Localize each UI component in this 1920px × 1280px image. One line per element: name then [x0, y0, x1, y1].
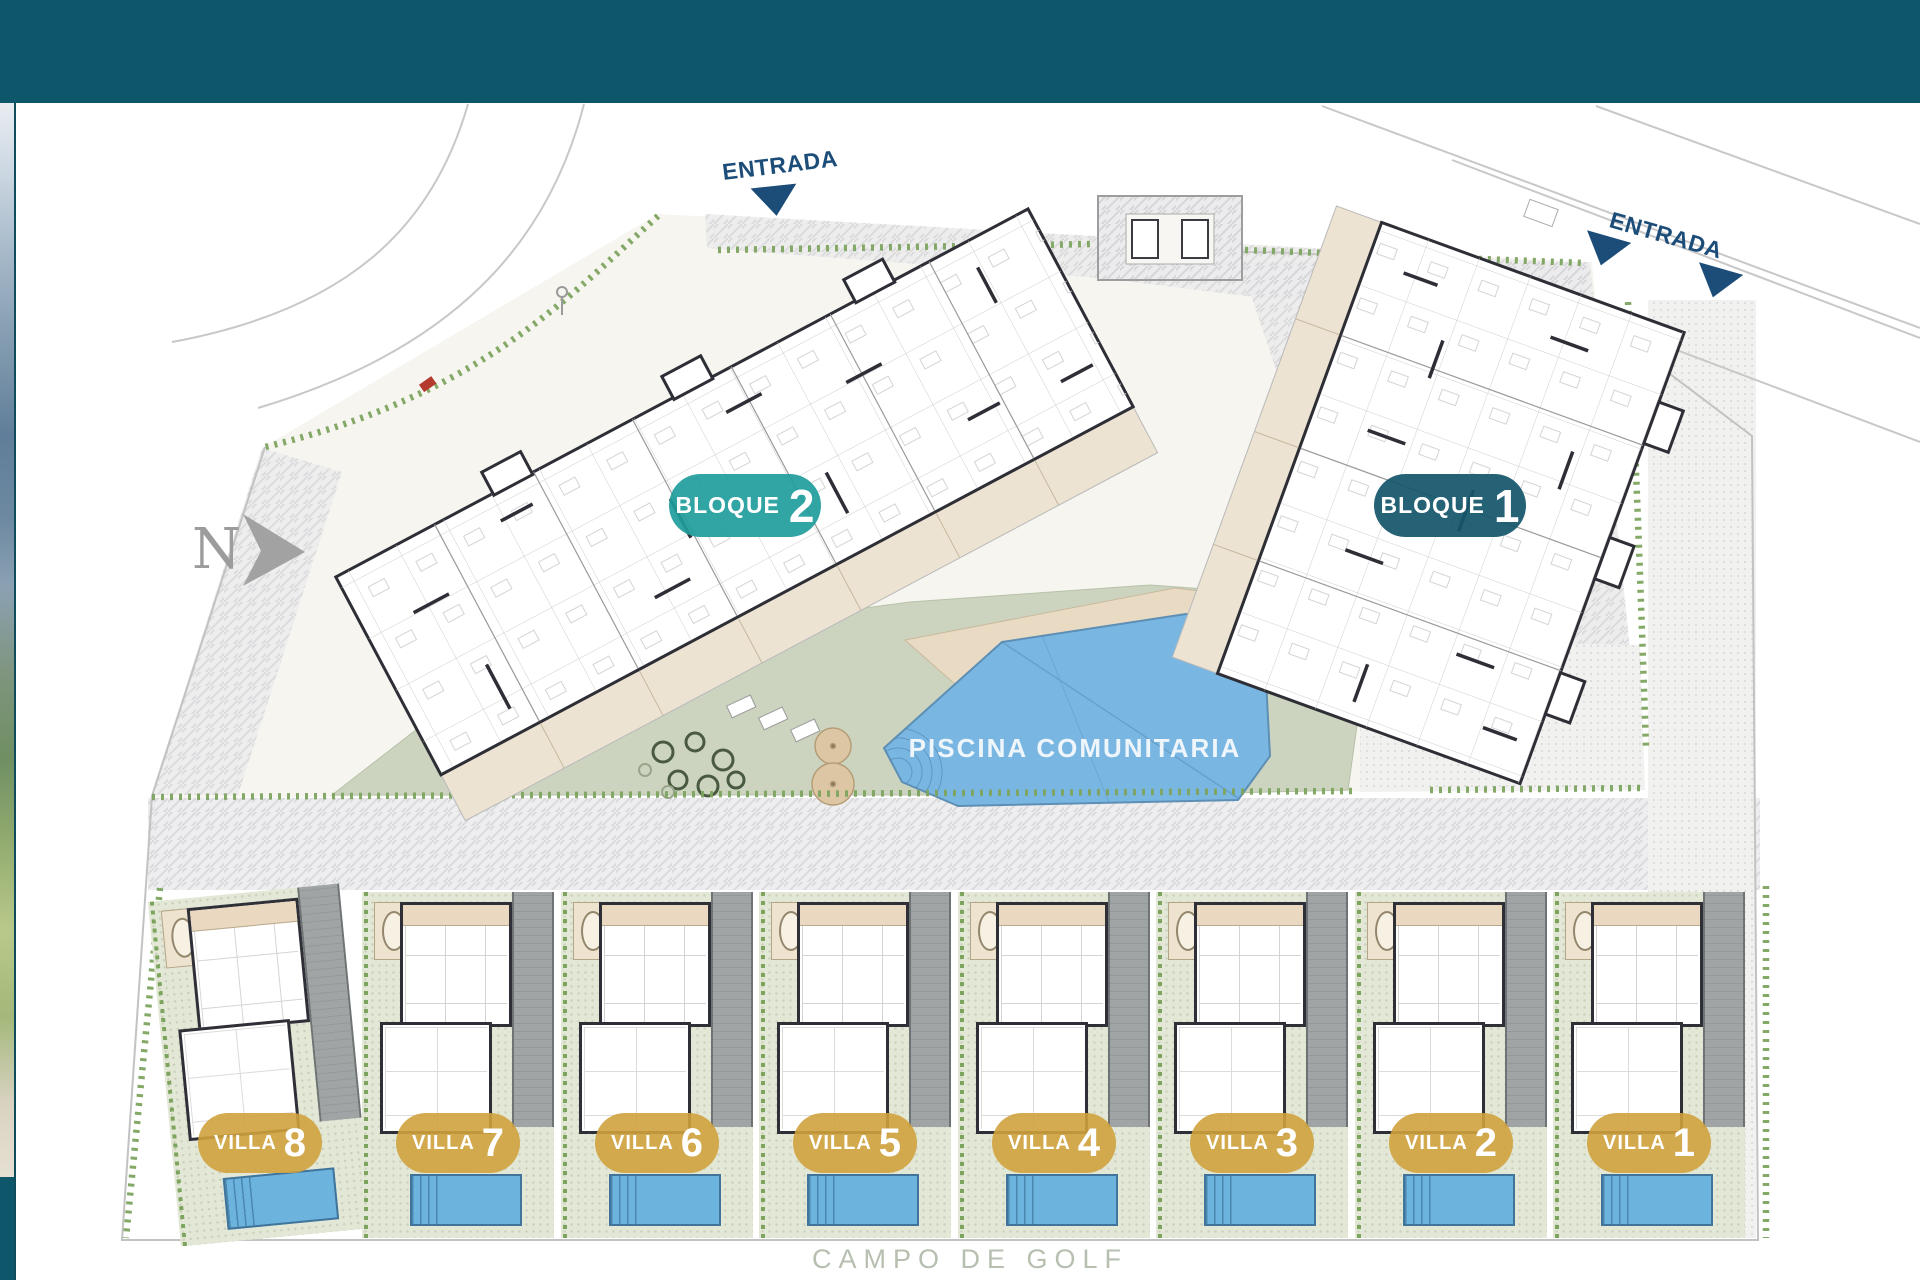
villa-7-plot: VILLA 7 — [362, 892, 554, 1238]
bloque-2-label: BLOQUE — [676, 492, 780, 519]
villa-driveway — [512, 892, 554, 1127]
villa-6-number: 6 — [681, 1123, 703, 1163]
villa-2-label: VILLA — [1405, 1132, 1468, 1155]
bloque-1-badge[interactable]: BLOQUE 1 — [1374, 474, 1526, 537]
villa-6-plot: VILLA 6 — [561, 892, 753, 1238]
villa-2-number: 2 — [1475, 1123, 1497, 1163]
villa-1-badge[interactable]: VILLA 1 — [1587, 1113, 1711, 1173]
bloque-1-label: BLOQUE — [1381, 492, 1485, 519]
villa-pool — [410, 1174, 522, 1226]
villa-1-number: 1 — [1673, 1123, 1695, 1163]
aerial-photo-strip — [0, 103, 14, 1177]
villa-6-badge[interactable]: VILLA 6 — [595, 1113, 719, 1173]
north-arrow-icon — [241, 512, 309, 588]
villa-house-plan — [400, 902, 512, 1027]
north-label: N — [192, 522, 241, 578]
villa-pool — [609, 1174, 721, 1226]
villa-3-badge[interactable]: VILLA 3 — [1190, 1113, 1314, 1173]
photo-strip-teal-block — [0, 1177, 14, 1280]
villa-3-label: VILLA — [1206, 1132, 1269, 1155]
golf-course-label: CAMPO DE GOLF — [770, 1244, 1170, 1275]
villa-house-plan — [1194, 902, 1306, 1027]
villa-pool — [1601, 1174, 1713, 1226]
entrance-arrow-top-icon — [751, 184, 800, 219]
villa-house-plan — [599, 902, 711, 1027]
villa-hedge — [1555, 892, 1559, 1238]
villa-pool — [223, 1167, 339, 1229]
header-bar — [0, 0, 1920, 103]
villa-4-label: VILLA — [1008, 1132, 1071, 1155]
villa-7-number: 7 — [482, 1123, 504, 1163]
villa-house-plan — [797, 902, 909, 1027]
entry-pavilion — [1098, 196, 1242, 280]
villa-pool — [1204, 1174, 1316, 1226]
north-compass: N — [192, 508, 312, 592]
villa-house-plan — [996, 902, 1108, 1027]
villa-hedge — [960, 892, 964, 1238]
villa-hedge — [1357, 892, 1361, 1238]
villa-driveway — [1703, 892, 1745, 1127]
road-marking — [1524, 199, 1558, 226]
villa-8-badge[interactable]: VILLA 8 — [198, 1113, 322, 1173]
villa-2-badge[interactable]: VILLA 2 — [1389, 1113, 1513, 1173]
villa-4-number: 4 — [1078, 1123, 1100, 1163]
strip-divider-line — [14, 103, 16, 1280]
villa-4-plot: VILLA 4 — [958, 892, 1150, 1238]
villa-house-plan — [1591, 902, 1703, 1027]
villa-7-label: VILLA — [412, 1132, 475, 1155]
bloque-2-badge[interactable]: BLOQUE 2 — [669, 474, 821, 537]
villa-6-label: VILLA — [611, 1132, 674, 1155]
villa-8-label: VILLA — [214, 1132, 277, 1155]
villa-house-plan — [1393, 902, 1505, 1027]
villa-3-number: 3 — [1276, 1123, 1298, 1163]
villa-pool — [807, 1174, 919, 1226]
villa-8-number: 8 — [284, 1123, 306, 1163]
villa-4-badge[interactable]: VILLA 4 — [992, 1113, 1116, 1173]
villa-driveway — [1306, 892, 1348, 1127]
villa-driveway — [909, 892, 951, 1127]
villa-house-plan — [187, 898, 310, 1033]
villa-5-badge[interactable]: VILLA 5 — [793, 1113, 917, 1173]
villa-5-number: 5 — [879, 1123, 901, 1163]
villa-1-plot: VILLA 1 — [1553, 892, 1745, 1238]
villa-driveway — [1108, 892, 1150, 1127]
villa-hedge — [364, 892, 368, 1238]
pool-label: PISCINA COMUNITARIA — [909, 733, 1242, 763]
bloque-2-number: 2 — [789, 483, 815, 529]
villa-8-plot: VILLA 8 — [164, 892, 356, 1238]
villa-5-label: VILLA — [809, 1132, 872, 1155]
villa-pool — [1006, 1174, 1118, 1226]
villa-hedge — [761, 892, 765, 1238]
villa-driveway — [1505, 892, 1547, 1127]
bloque-1-number: 1 — [1494, 483, 1520, 529]
villa-5-plot: VILLA 5 — [759, 892, 951, 1238]
villa-hedge — [1158, 892, 1162, 1238]
villa-pool — [1403, 1174, 1515, 1226]
villa-3-plot: VILLA 3 — [1156, 892, 1348, 1238]
site-plan: PISCINA COMUNITARIA — [0, 0, 1920, 1280]
villa-driveway — [711, 892, 753, 1127]
villa-2-plot: VILLA 2 — [1355, 892, 1547, 1238]
villa-1-label: VILLA — [1603, 1132, 1666, 1155]
villa-hedge — [563, 892, 567, 1238]
paving-villas-band — [148, 798, 1760, 890]
villa-7-badge[interactable]: VILLA 7 — [396, 1113, 520, 1173]
